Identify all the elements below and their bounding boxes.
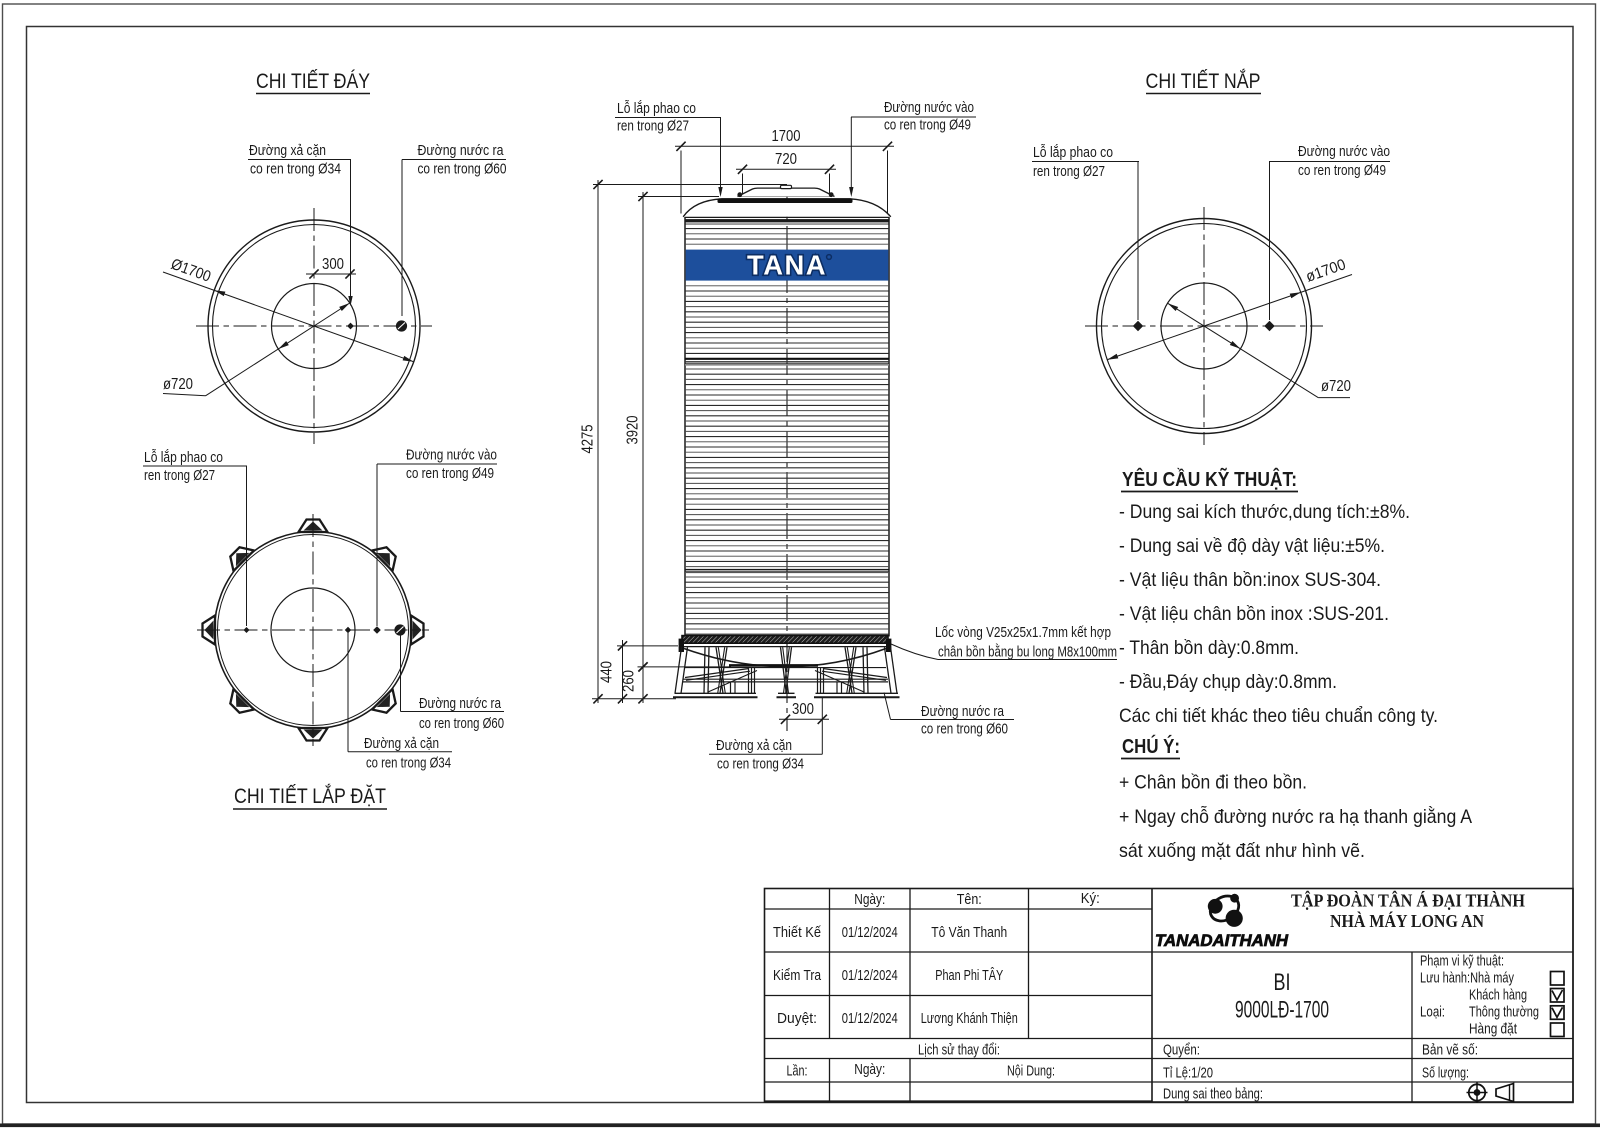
svg-text:ren trong Ø27: ren trong Ø27 <box>144 467 215 484</box>
svg-text:ø720: ø720 <box>163 376 193 393</box>
svg-text:Tỉ Lệ:1/20: Tỉ Lệ:1/20 <box>1163 1065 1213 1082</box>
svg-text:co ren trong Ø49: co ren trong Ø49 <box>884 117 971 134</box>
svg-text:chân bồn bằng bu long M8x100mm: chân bồn bằng bu long M8x100mm <box>938 644 1117 661</box>
svg-text:4275: 4275 <box>580 425 597 454</box>
svg-text:1700: 1700 <box>772 128 801 145</box>
svg-text:Phạm vi kỹ thuật:: Phạm vi kỹ thuật: <box>1420 953 1504 970</box>
svg-text:+ Chân bồn đi theo bồn.: + Chân bồn đi theo bồn. <box>1119 772 1307 794</box>
svg-text:Lưu hành:Nhà máy: Lưu hành:Nhà máy <box>1420 970 1514 987</box>
svg-text:ren trong Ø27: ren trong Ø27 <box>1033 163 1105 180</box>
svg-text:Đường nước vào: Đường nước vào <box>884 99 974 116</box>
svg-text:Lỗ lắp phao co: Lỗ lắp phao co <box>617 100 696 117</box>
svg-text:Tô Văn Thanh: Tô Văn Thanh <box>931 924 1007 941</box>
svg-text:Kiểm Tra: Kiểm Tra <box>773 967 822 984</box>
svg-text:CHI TIẾT ĐÁY: CHI TIẾT ĐÁY <box>256 70 370 93</box>
svg-text:- Vật liệu thân bồn:inox SUS-3: - Vật liệu thân bồn:inox SUS-304. <box>1119 569 1381 591</box>
svg-text:Thiết Kế: Thiết Kế <box>773 924 822 941</box>
svg-text:co ren trong Ø49: co ren trong Ø49 <box>406 465 494 482</box>
svg-text:720: 720 <box>775 151 797 168</box>
svg-text:Phan Phi TÂY: Phan Phi TÂY <box>935 967 1003 984</box>
svg-text:ren trong Ø27: ren trong Ø27 <box>617 118 689 135</box>
svg-text:Đường nước ra: Đường nước ra <box>418 142 505 159</box>
svg-text:300: 300 <box>322 256 344 273</box>
svg-text:Loại:: Loại: <box>1420 1004 1445 1021</box>
svg-text:CHI TIẾT LẮP ĐẶT: CHI TIẾT LẮP ĐẶT <box>234 784 386 808</box>
svg-text:Lịch sử thay đổi:: Lịch sử thay đổi: <box>918 1042 1000 1059</box>
svg-text:Ký:: Ký: <box>1081 890 1100 907</box>
svg-text:Lương Khánh Thiện: Lương Khánh Thiện <box>921 1010 1018 1027</box>
svg-text:CHÚ Ý:: CHÚ Ý: <box>1122 734 1180 758</box>
svg-text:Đường xả cặn: Đường xả cặn <box>364 735 439 752</box>
svg-text:co ren trong Ø49: co ren trong Ø49 <box>1298 162 1386 179</box>
svg-text:Hàng đặt: Hàng đặt <box>1469 1021 1518 1038</box>
svg-text:Thông thường: Thông thường <box>1469 1004 1539 1021</box>
svg-text:+ Ngay chỗ đường nước ra hạ th: + Ngay chỗ đường nước ra hạ thanh giằng … <box>1119 805 1472 828</box>
svg-text:Bản vẽ số:: Bản vẽ số: <box>1422 1042 1478 1059</box>
svg-text:TANADAITHANH: TANADAITHANH <box>1155 931 1289 950</box>
svg-text:Các chi tiết khác theo tiêu ch: Các chi tiết khác theo tiêu chuẩn công t… <box>1119 705 1438 727</box>
svg-text:co ren trong Ø60: co ren trong Ø60 <box>921 721 1008 738</box>
svg-text:Khách hàng: Khách hàng <box>1469 987 1527 1004</box>
svg-text:260: 260 <box>621 670 638 692</box>
svg-text:01/12/2024: 01/12/2024 <box>842 1010 898 1027</box>
svg-text:- Đầu,Đáy chụp dày:0.8mm.: - Đầu,Đáy chụp dày:0.8mm. <box>1119 671 1337 693</box>
svg-text:Đường nước vào: Đường nước vào <box>406 447 497 464</box>
svg-text:NHÀ MÁY LONG AN: NHÀ MÁY LONG AN <box>1330 911 1484 931</box>
svg-text:ø720: ø720 <box>1321 378 1351 395</box>
svg-text:Đường nước vào: Đường nước vào <box>1298 143 1390 160</box>
svg-text:01/12/2024: 01/12/2024 <box>842 967 898 984</box>
svg-text:Nội Dung:: Nội Dung: <box>1007 1063 1055 1080</box>
svg-text:Ngày:: Ngày: <box>854 1061 885 1078</box>
svg-text:co ren trong Ø34: co ren trong Ø34 <box>717 756 804 773</box>
svg-text:YÊU CẦU KỸ THUẬT:: YÊU CẦU KỸ THUẬT: <box>1122 467 1297 491</box>
svg-text:CHI TIẾT NẮP: CHI TIẾT NẮP <box>1146 69 1261 93</box>
svg-text:300: 300 <box>792 701 814 718</box>
svg-text:TANA: TANA <box>747 250 827 281</box>
svg-text:440: 440 <box>599 661 616 683</box>
svg-text:9000LĐ-1700: 9000LĐ-1700 <box>1235 997 1329 1024</box>
svg-text:3920: 3920 <box>625 415 642 444</box>
svg-text:co ren trong Ø34: co ren trong Ø34 <box>366 755 451 772</box>
svg-text:sát xuống mặt đất như hình vẽ.: sát xuống mặt đất như hình vẽ. <box>1119 840 1365 862</box>
svg-text:co ren trong Ø34: co ren trong Ø34 <box>250 161 341 178</box>
svg-text:- Vật liệu chân bồn inox :SUS-: - Vật liệu chân bồn inox :SUS-201. <box>1119 603 1389 625</box>
svg-text:Dung sai theo bảng:: Dung sai theo bảng: <box>1163 1086 1263 1103</box>
svg-text:- Thân bồn dày:0.8mm.: - Thân bồn dày:0.8mm. <box>1119 637 1299 659</box>
svg-text:Lỗ lắp phao co: Lỗ lắp phao co <box>1033 144 1113 161</box>
svg-text:Lốc vòng V25x25x1.7mm kết hợp: Lốc vòng V25x25x1.7mm kết hợp <box>935 624 1111 641</box>
svg-text:Tên:: Tên: <box>957 891 982 908</box>
svg-text:Số lượng:: Số lượng: <box>1422 1065 1469 1082</box>
svg-text:Quyển:: Quyển: <box>1163 1042 1200 1059</box>
svg-text:Đường xả cặn: Đường xả cặn <box>716 737 792 754</box>
svg-text:Duyệt:: Duyệt: <box>777 1010 817 1027</box>
svg-text:Lỗ lắp phao co: Lỗ lắp phao co <box>144 449 223 466</box>
svg-text:co ren trong Ø60: co ren trong Ø60 <box>419 715 504 732</box>
svg-text:BI: BI <box>1274 969 1291 996</box>
svg-text:Đường nước ra: Đường nước ra <box>419 695 502 712</box>
svg-text:TẬP ĐOÀN TÂN Á ĐẠI THÀNH: TẬP ĐOÀN TÂN Á ĐẠI THÀNH <box>1291 891 1525 911</box>
svg-text:Đường nước ra: Đường nước ra <box>921 703 1005 720</box>
svg-text:Ngày:: Ngày: <box>854 891 885 908</box>
svg-text:- Dung sai kích thước,dung tíc: - Dung sai kích thước,dung tích:±8%. <box>1119 501 1410 523</box>
svg-text:Đường xả cặn: Đường xả cặn <box>249 142 326 159</box>
svg-text:co ren trong Ø60: co ren trong Ø60 <box>418 161 507 178</box>
svg-text:01/12/2024: 01/12/2024 <box>842 924 898 941</box>
svg-text:- Dung sai về độ dày vật liệu:: - Dung sai về độ dày vật liệu:±5%. <box>1119 535 1385 557</box>
svg-text:Lần:: Lần: <box>787 1063 808 1080</box>
